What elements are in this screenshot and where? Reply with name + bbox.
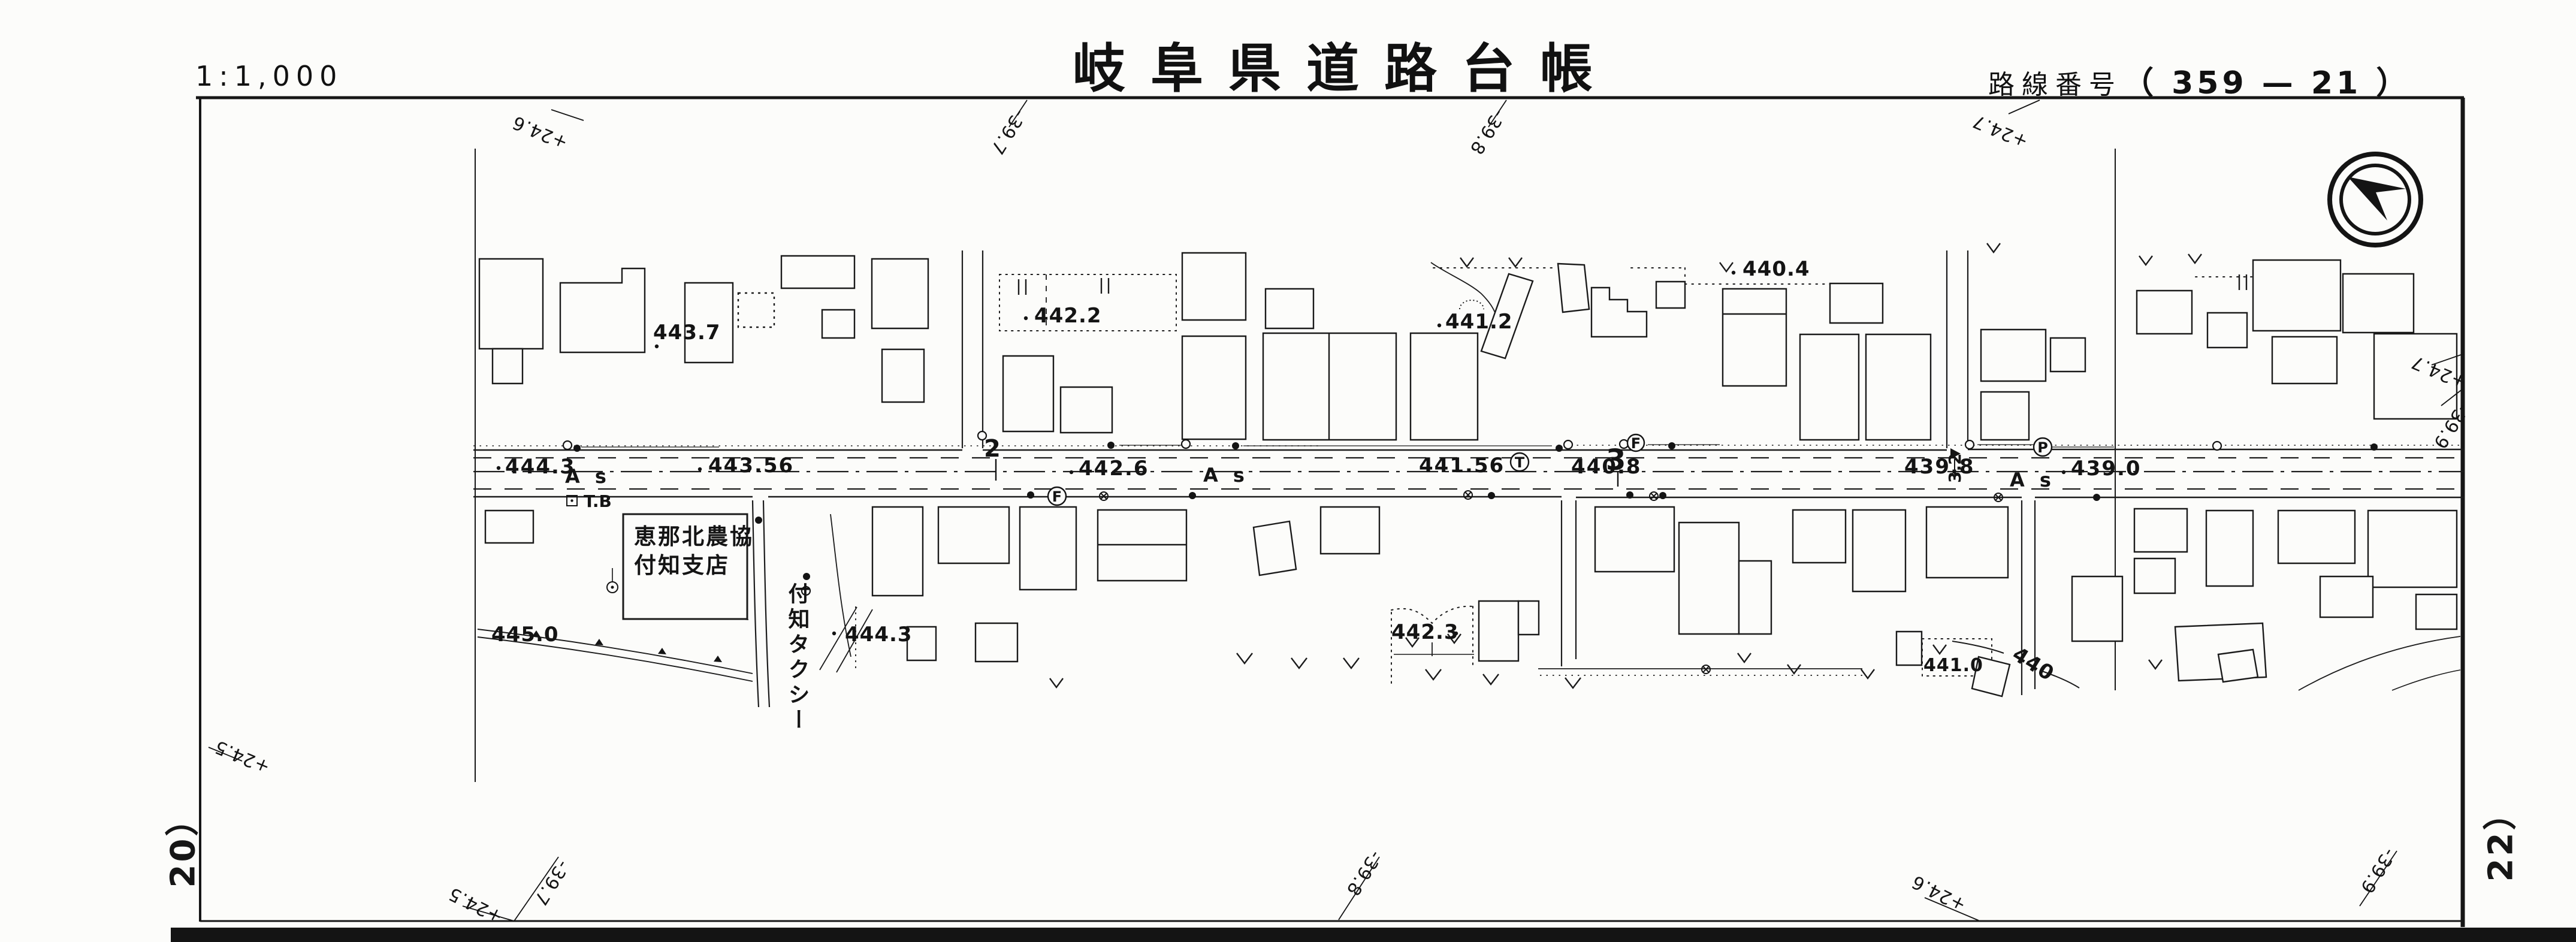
building-outline [1020, 507, 1076, 590]
building-outline [976, 623, 1017, 662]
map-canvas: 444.3 443.56 442.6 441.56 440.8 439.8 43… [0, 0, 2576, 942]
building-outline [1739, 561, 1771, 634]
road-elevation-label: 442.6 [1079, 457, 1149, 481]
building-outline [1981, 330, 2046, 381]
building-outline [1479, 601, 1518, 661]
building-outline [1558, 264, 1589, 312]
spot-height-label: 445.0 [491, 623, 559, 647]
building-outline [2278, 511, 2355, 563]
north-arrow-icon [2330, 154, 2421, 245]
spot-height-label: 442.3 [1391, 620, 1459, 644]
building-outline [1182, 253, 1246, 320]
grid-coordinate-label: -39.7 [986, 105, 1029, 159]
building-outline [1061, 387, 1112, 433]
building-outline [1723, 289, 1786, 386]
pavement-label: A s [1203, 464, 1249, 487]
building-outline [1411, 333, 1478, 440]
station-number: 2 [984, 435, 1001, 463]
spot-height-label: 443.7 [653, 321, 721, 345]
building-name-taxi: 付知タクシー [785, 582, 810, 733]
grid-coordinate-label: -39.9 [2355, 844, 2399, 898]
spot-height-label: 440.4 [1743, 257, 1810, 281]
building-outline [2343, 274, 2414, 333]
building-outline [2207, 313, 2247, 348]
building-outline [1182, 336, 1246, 439]
building-outline [1254, 521, 1296, 575]
pavement-label: A s [565, 465, 611, 488]
grid-coordinate-label: -39.8 [1342, 847, 1385, 900]
grid-coordinate-label: +24.5 [212, 736, 273, 778]
road-elevation-label: 443.56 [708, 454, 794, 478]
building-outline [1830, 283, 1883, 323]
well-symbol-icon [607, 568, 618, 593]
building-outline [2272, 337, 2337, 384]
building-outline [738, 293, 774, 327]
grid-coordinate-label: +24.7 [1970, 110, 2031, 152]
building-outline [1981, 392, 2029, 440]
building-outline [493, 349, 523, 384]
building-outline [1866, 334, 1931, 440]
road-ledger-sheet: 1:1,000 岐阜県道路台帳 路線番号（ 359 — 21 ） 20） 22） [0, 0, 2576, 942]
grid-coordinate-label: +24.6 [1908, 871, 1970, 916]
spot-height-label: 442.2 [1034, 304, 1102, 328]
grid-coordinate-label: -39.7 [529, 856, 573, 910]
building-outline [479, 259, 543, 349]
building-outline [872, 259, 928, 328]
contour-label: 440 [2008, 642, 2058, 686]
buildings-lower [485, 507, 2457, 696]
building-outline [1518, 601, 1539, 635]
building-outline [1793, 510, 1846, 563]
road-width-note: 3.2 [1945, 453, 1965, 483]
building-outline [1321, 507, 1379, 554]
building-outline [1926, 507, 2008, 578]
building-outline [781, 256, 854, 288]
pole-letter: F [1631, 435, 1641, 452]
building-outline [2050, 338, 2085, 372]
grid-coordinate-label: +24.6 [509, 111, 571, 153]
grid-coordinate-label: -39.8 [1465, 105, 1509, 159]
building-outline [882, 349, 924, 402]
building-outline [2072, 576, 2122, 641]
building-outline [1679, 523, 1739, 634]
building-outline [1003, 356, 1053, 431]
building-outline [2206, 511, 2253, 586]
building-outline [1896, 632, 1922, 665]
benchmark-label: T.B [584, 491, 612, 511]
building-outline [1263, 333, 1396, 440]
building-outline [2134, 509, 2187, 552]
path-ticks [532, 630, 722, 662]
building-outline [1098, 510, 1186, 581]
building-outline [2137, 291, 2192, 334]
building-outline [485, 511, 533, 543]
spot-height-label: 441.0 [1923, 655, 1983, 676]
building-outline [2253, 260, 2341, 331]
building-outline [938, 507, 1009, 563]
building-outline [1853, 510, 1905, 591]
building-outline [1656, 282, 1685, 308]
building-outline [2368, 511, 2457, 587]
building-outline [1595, 507, 1674, 572]
building-outline [2416, 594, 2457, 629]
building-outline [2218, 650, 2258, 682]
building-outline [2134, 558, 2175, 593]
building-outline [872, 507, 923, 596]
station-number: 3 [1606, 443, 1626, 477]
building-outline [560, 268, 645, 352]
spot-height-label: 441.2 [1445, 310, 1513, 334]
building-outline [822, 310, 854, 338]
building-name-line2: 付知支店 [634, 552, 730, 578]
road-elevation-label: 441.56 [1419, 454, 1505, 478]
building-outline [1266, 289, 1313, 328]
pole-letter: T [1515, 454, 1525, 471]
building-name-line1: 恵那北農協 [634, 524, 754, 549]
buildings-upper [479, 253, 2457, 440]
road-elevation-label: 439.0 [2071, 457, 2142, 481]
building-outline [1591, 288, 1647, 337]
pole-letter-circles [1048, 434, 2052, 505]
building-outline [1800, 334, 1859, 440]
scan-edge-bar [171, 928, 2576, 942]
pole-letter: F [1052, 488, 1062, 505]
pole-letter: P [2037, 439, 2048, 456]
building-outline [2320, 576, 2373, 617]
spot-height-label: 444.3 [845, 623, 913, 647]
pavement-label: A s [2010, 469, 2055, 491]
